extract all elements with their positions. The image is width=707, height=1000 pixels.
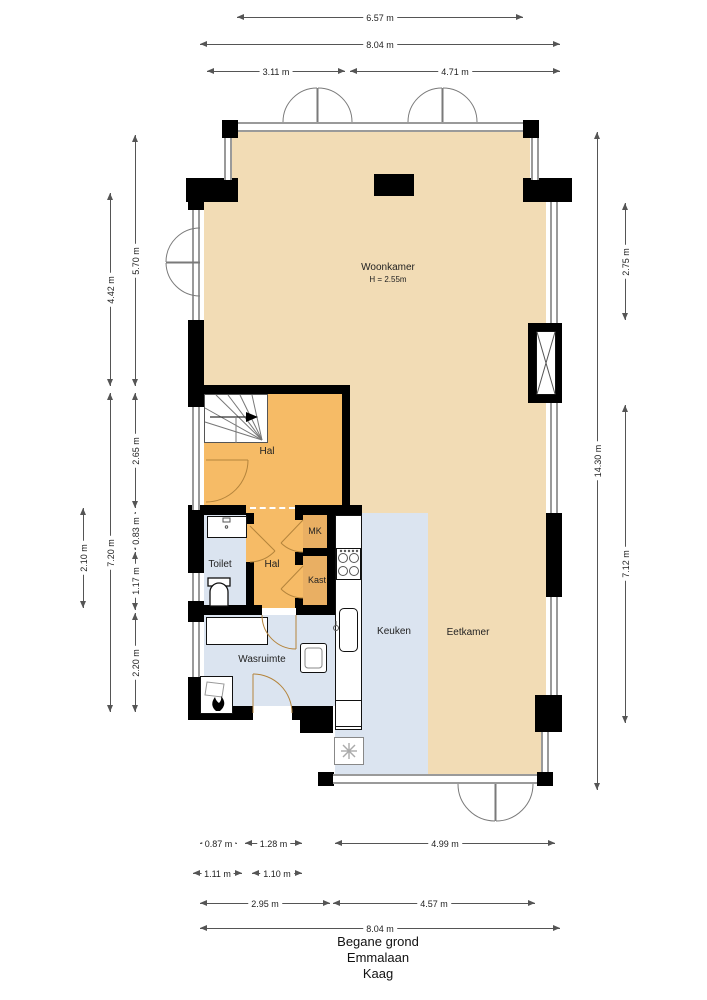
dimension-left-220: 2.20 m — [130, 613, 141, 712]
wall-segment — [300, 720, 333, 733]
dimension-bottom-110: 1.10 m — [252, 868, 302, 879]
room-label-toilet: Toilet — [208, 559, 231, 571]
window-segment — [541, 732, 549, 772]
dimension-bottom-295: 2.95 m — [200, 898, 330, 909]
window-segment — [531, 138, 539, 180]
wall-segment — [296, 605, 335, 615]
window-segment — [550, 202, 558, 323]
room-label-hal2: Hal — [264, 559, 279, 571]
window-segment — [192, 622, 200, 677]
floor-plan: Woonkamer H = 2.55m Hal Toilet Hal MK Ka… — [0, 0, 707, 1000]
wall-segment — [523, 120, 539, 138]
room-eetkamer — [428, 513, 546, 774]
dimension-left-083: 0.83 m — [130, 512, 141, 550]
room-label-keuken: Keuken — [377, 626, 411, 638]
dimension-right-712: 7.12 m — [620, 405, 631, 723]
wall-segment — [537, 772, 553, 786]
stove-icon — [336, 548, 361, 580]
wall-segment — [188, 202, 204, 210]
dimension-left-570: 5.70 m — [130, 135, 141, 386]
room-label-eetkamer: Eetkamer — [447, 627, 490, 639]
window-segment — [550, 403, 558, 513]
dimension-right-1430: 14.30 m — [592, 132, 603, 790]
wall-segment — [292, 706, 333, 720]
wall-segment — [327, 513, 335, 608]
room-woonkamer-lower — [342, 394, 546, 515]
wall-segment — [186, 178, 238, 202]
dimension-left-117: 1.17 m — [130, 552, 141, 610]
washing-machine — [206, 617, 268, 645]
dimension-bottom-457: 4.57 m — [333, 898, 535, 909]
wall-segment — [188, 320, 204, 407]
wall-segment — [523, 178, 572, 202]
wall-segment — [318, 772, 334, 786]
room-label-woonkamer: Woonkamer H = 2.55m — [361, 262, 415, 286]
fireplace-icon — [536, 331, 556, 395]
window-segment — [550, 597, 558, 695]
wall-segment — [246, 562, 254, 608]
threshold-dashes — [253, 715, 292, 717]
window-segment — [192, 210, 200, 320]
room-label-mk: MK — [308, 525, 322, 537]
wall-segment — [246, 513, 254, 524]
toilet-sink-icon — [207, 516, 247, 538]
wall-segment — [204, 385, 350, 394]
wall-segment — [546, 513, 562, 597]
dimension-left-720: 7.20 m — [105, 393, 116, 712]
wall-segment — [188, 605, 262, 615]
dimension-right-275: 2.75 m — [620, 203, 631, 320]
plan-title-floor: Begane grond — [258, 934, 498, 950]
dimension-top-311: 3.11 m — [207, 66, 345, 77]
room-label-kast: Kast — [308, 574, 326, 586]
dimension-left-442: 4.42 m — [105, 193, 116, 386]
plan-title: Begane grond Emmalaan Kaag — [258, 934, 498, 982]
counter-appliance — [335, 700, 362, 727]
wall-segment — [342, 394, 350, 515]
dimension-top-471: 4.71 m — [350, 66, 560, 77]
window-segment — [192, 407, 200, 510]
dimension-top-657: 6.57 m — [237, 12, 523, 23]
window-segment — [238, 122, 523, 132]
dimension-top-804: 8.04 m — [200, 39, 560, 50]
room-woonkamer — [204, 202, 546, 394]
chimney-block — [374, 174, 414, 196]
dimension-left-265: 2.65 m — [130, 393, 141, 508]
wall-segment — [188, 510, 204, 573]
window-segment — [192, 573, 200, 601]
dimension-bottom-804: 8.04 m — [200, 923, 560, 934]
room-height-note: H = 2.55m — [361, 274, 415, 286]
room-label-wasruimte: Wasruimte — [238, 654, 285, 666]
room-label-hal: Hal — [259, 446, 274, 458]
boiler-icon — [200, 676, 233, 714]
window-segment — [224, 138, 232, 180]
stairs — [204, 394, 268, 443]
threshold-dashes — [250, 507, 295, 509]
kitchen-sink-icon — [339, 608, 358, 652]
plan-title-street: Emmalaan — [258, 950, 498, 966]
wall-segment — [535, 695, 562, 732]
window-segment — [333, 774, 537, 784]
dimension-left-210: 2.10 m — [78, 508, 89, 608]
dryer-appliance — [300, 643, 327, 673]
plan-title-city: Kaag — [258, 966, 498, 982]
wall-segment — [222, 120, 238, 138]
floor-unit — [334, 737, 364, 765]
dimension-bottom-128: 1.28 m — [245, 838, 302, 849]
wall-segment — [295, 552, 303, 565]
dimension-bottom-499: 4.99 m — [335, 838, 555, 849]
dimension-bottom-087: 0.87 m — [200, 838, 237, 849]
dimension-bottom-111: 1.11 m — [193, 868, 242, 879]
wall-segment — [295, 513, 303, 520]
wall-segment — [303, 548, 327, 556]
